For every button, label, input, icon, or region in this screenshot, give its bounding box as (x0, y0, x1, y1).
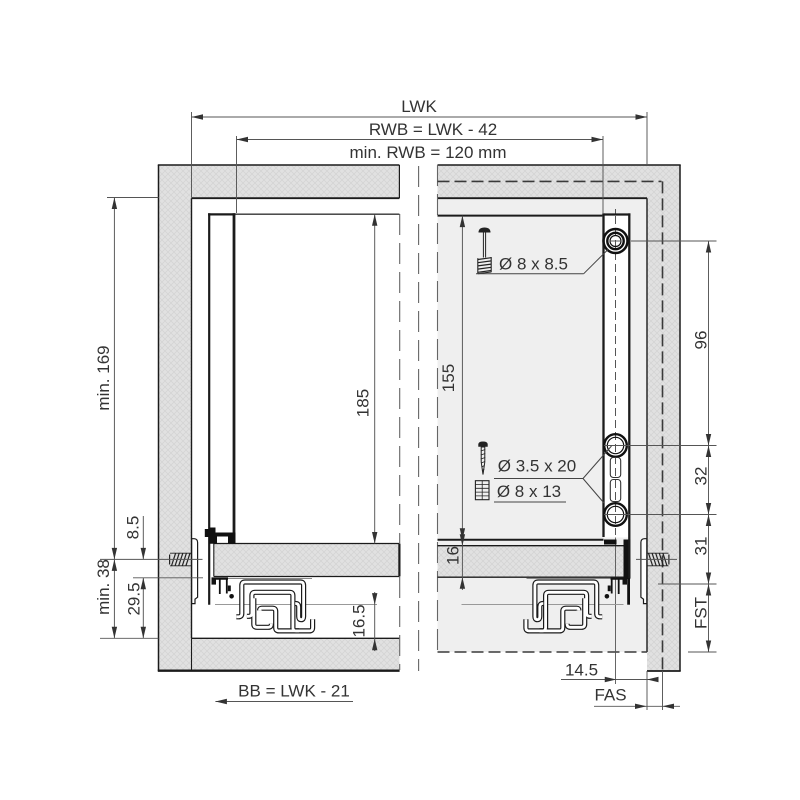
svg-text:155: 155 (439, 364, 458, 392)
svg-text:LWK: LWK (401, 97, 437, 116)
svg-text:Ø 3.5 x 20: Ø 3.5 x 20 (498, 457, 576, 476)
svg-text:BB = LWK - 21: BB = LWK - 21 (238, 682, 350, 701)
svg-text:FST: FST (692, 597, 711, 629)
svg-text:31: 31 (692, 537, 711, 556)
svg-text:RWB = LWK - 42: RWB = LWK - 42 (369, 120, 497, 139)
svg-text:32: 32 (692, 467, 711, 486)
svg-text:8.5: 8.5 (124, 516, 143, 540)
svg-text:185: 185 (354, 389, 373, 417)
svg-text:16: 16 (444, 546, 463, 565)
svg-text:min. 38: min. 38 (94, 559, 113, 615)
svg-text:16.5: 16.5 (350, 604, 369, 637)
svg-text:FAS: FAS (594, 686, 626, 705)
svg-text:Ø 8 x 13: Ø 8 x 13 (497, 482, 561, 501)
svg-text:29.5: 29.5 (125, 582, 144, 615)
svg-text:96: 96 (692, 331, 711, 350)
svg-text:14.5: 14.5 (565, 661, 598, 680)
svg-text:min. 169: min. 169 (94, 345, 113, 410)
svg-text:min. RWB = 120 mm: min. RWB = 120 mm (350, 143, 507, 162)
svg-text:Ø 8 x 8.5: Ø 8 x 8.5 (499, 255, 568, 274)
